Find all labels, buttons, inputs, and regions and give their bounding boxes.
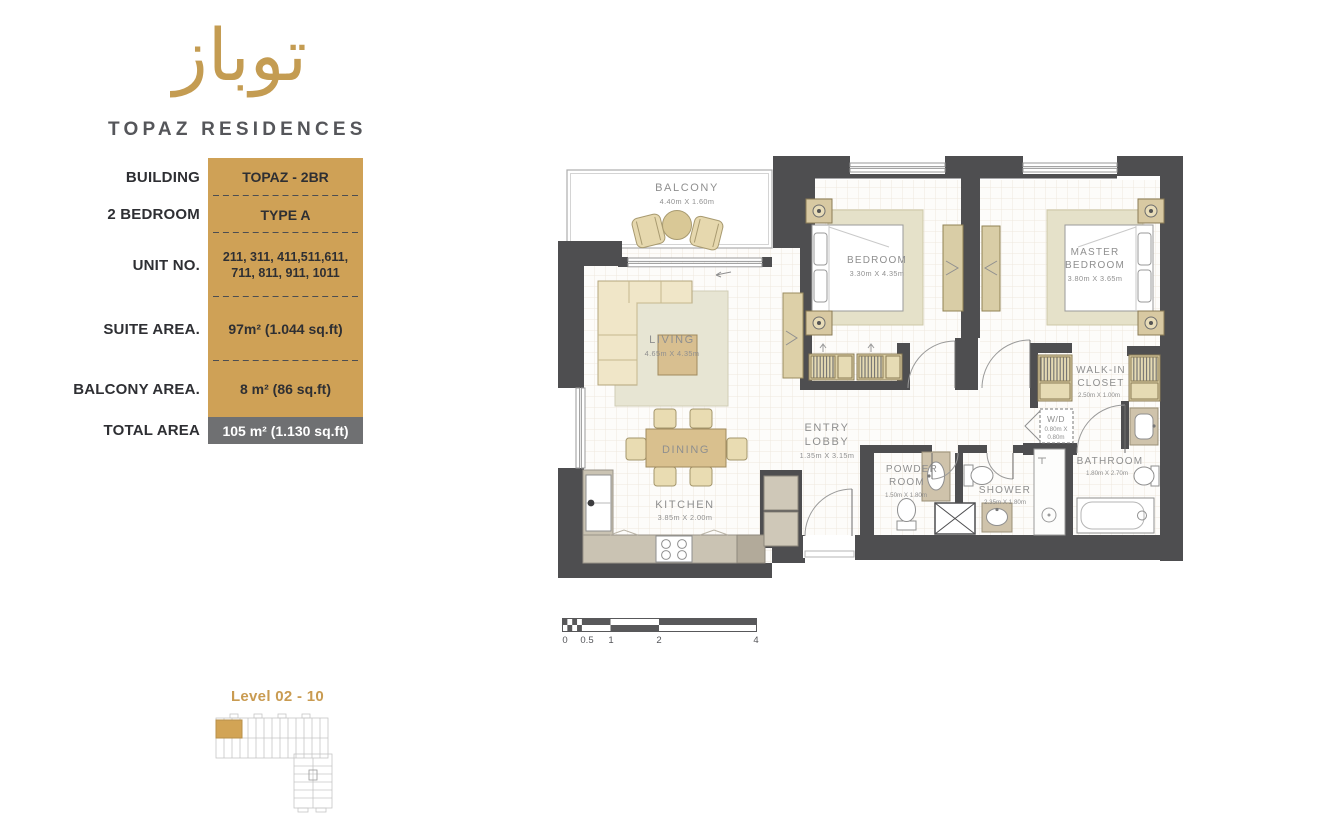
- spec-value: 8 m² (86 sq.ft): [208, 361, 363, 417]
- scale-tick: 0.5: [580, 635, 593, 646]
- nightstand: [806, 199, 832, 223]
- spec-value: TOPAZ - 2BR: [208, 158, 363, 196]
- spec-row-type: 2 BEDROOM TYPE A: [0, 196, 363, 233]
- floor-plan-page: توباز TOPAZ RESIDENCES BUILDING TOPAZ - …: [0, 0, 1336, 836]
- toilet: [1134, 466, 1159, 486]
- powder-room-dims: 1.50m X 1.80m: [885, 492, 927, 499]
- spec-value-total: 105 m² (1.130 sq.ft): [208, 417, 363, 444]
- toilet: [897, 499, 916, 531]
- powder-room-label2: ROOM: [889, 477, 925, 488]
- bedroom-label: BEDROOM: [847, 255, 907, 266]
- entry-lobby-dims: 1.35m X 3.15m: [800, 451, 855, 460]
- bathtub: [1077, 498, 1154, 533]
- master-bedroom-label: MASTER: [1071, 247, 1120, 258]
- brand-name: TOPAZ RESIDENCES: [108, 119, 368, 141]
- spec-value: 97m² (1.044 sq.ft): [208, 297, 363, 361]
- balcony-table: [663, 211, 692, 240]
- balcony-dims: 4.40m X 1.60m: [660, 197, 715, 206]
- floor-plan-drawing: BALCONY 4.40m X 1.60m LIVING 4.65m X 4.3…: [550, 143, 1195, 613]
- scale-tick: 0: [562, 635, 567, 646]
- faucet: [588, 500, 595, 507]
- entry-lobby-label2: LOBBY: [805, 436, 850, 448]
- walk-in-closet-label2: CLOSET: [1077, 378, 1124, 389]
- unit-spec-table: BUILDING TOPAZ - 2BR 2 BEDROOM TYPE A UN…: [0, 158, 363, 444]
- spec-label: BUILDING: [0, 158, 205, 196]
- powder-room-label: POWDER: [886, 464, 938, 475]
- scale-tick: 4: [753, 635, 758, 646]
- kitchen-dims: 3.85m X 2.00m: [658, 513, 713, 522]
- shower-dims: 2.35m X 1.80m: [984, 499, 1026, 506]
- scale-tick: 1: [608, 635, 613, 646]
- wd-label: W/D: [1047, 414, 1065, 424]
- nightstand: [1138, 311, 1164, 335]
- scale-bar: 0 0.5 1 2 4: [562, 618, 772, 652]
- master-bedroom-label2: BEDROOM: [1065, 260, 1125, 271]
- wd-dims2: 0.80m: [1047, 434, 1064, 441]
- unit-numbers-line2: 711, 811, 911, 1011: [231, 265, 339, 281]
- spec-label: UNIT NO.: [0, 233, 205, 297]
- bathroom-label: BATHROOM: [1077, 456, 1144, 467]
- level-label: Level 02 - 10: [205, 688, 350, 705]
- balcony-label: BALCONY: [655, 182, 719, 194]
- scale-bar-graphic: [562, 618, 762, 634]
- shower-label: SHOWER: [979, 485, 1031, 496]
- stove: [656, 536, 692, 562]
- nightstand: [1138, 199, 1164, 223]
- walk-in-closet-dims: 2.50m X 1.00m: [1078, 392, 1120, 399]
- spec-row-building: BUILDING TOPAZ - 2BR: [0, 158, 363, 196]
- spec-label: TOTAL AREA: [0, 417, 205, 444]
- toilet: [964, 465, 993, 486]
- master-bedroom-dims: 3.80m X 3.65m: [1068, 274, 1123, 283]
- living-label: LIVING: [649, 334, 695, 346]
- kitchen-label: KITCHEN: [655, 499, 714, 511]
- spec-label: BALCONY AREA.: [0, 361, 205, 417]
- wd-dims1: 0.80m X: [1044, 426, 1067, 433]
- shower-stall: [1034, 449, 1065, 535]
- spec-row-balcony-area: BALCONY AREA. 8 m² (86 sq.ft): [0, 361, 363, 417]
- bedroom-dims: 3.30m X 4.35m: [850, 269, 905, 278]
- building-footprint: [210, 710, 350, 820]
- shaft: [935, 503, 975, 534]
- living-dims: 4.65m X 4.35m: [645, 349, 700, 358]
- wardrobe: [943, 225, 963, 311]
- spec-value: TYPE A: [208, 196, 363, 233]
- spec-label: 2 BEDROOM: [0, 196, 205, 233]
- spec-label: SUITE AREA.: [0, 297, 205, 361]
- bathroom-dims: 1.80m X 2.70m: [1086, 470, 1128, 477]
- nightstand: [806, 311, 832, 335]
- topaz-arabic-logo: توباز: [135, 0, 345, 114]
- spec-value: 211, 311, 411,511,611, 711, 811, 911, 10…: [208, 233, 363, 297]
- spec-row-suite-area: SUITE AREA. 97m² (1.044 sq.ft): [0, 297, 363, 361]
- entry-lobby-label: ENTRY: [804, 422, 849, 434]
- spec-row-unit-no: UNIT NO. 211, 311, 411,511,611, 711, 811…: [0, 233, 363, 297]
- highlighted-unit: [216, 720, 242, 738]
- scale-tick: 2: [656, 635, 661, 646]
- walk-in-closet-label: WALK-IN: [1076, 365, 1126, 376]
- unit-numbers-line1: 211, 311, 411,511,611,: [223, 249, 348, 265]
- spec-row-total-area: TOTAL AREA 105 m² (1.130 sq.ft): [0, 417, 363, 444]
- dining-label: DINING: [662, 444, 710, 456]
- wardrobe: [982, 226, 1000, 311]
